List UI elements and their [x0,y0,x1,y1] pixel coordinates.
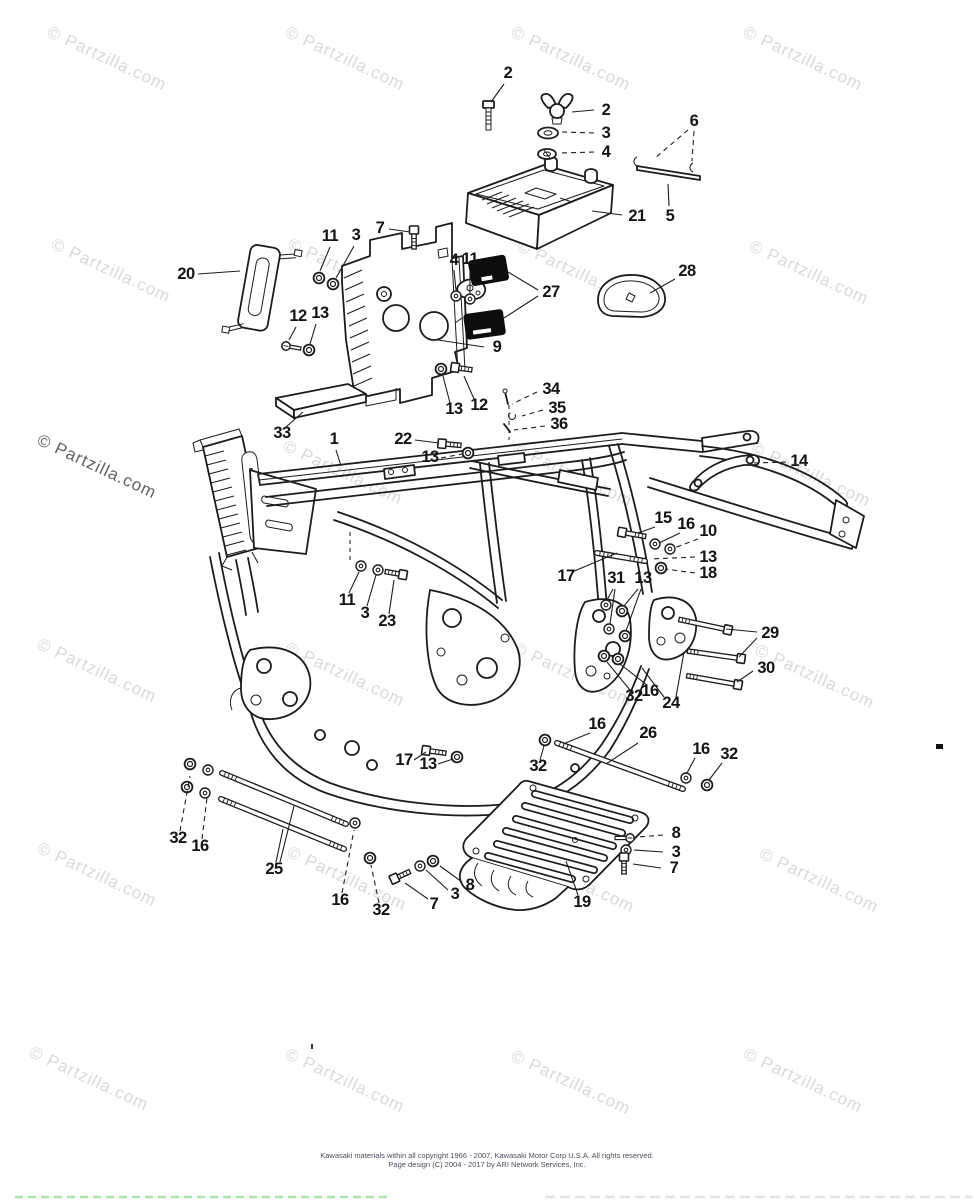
stud-fastener [221,797,344,850]
callout-13: 13 [419,755,453,773]
washer-fastener [451,291,461,301]
callout-label-3: 3 [451,885,460,903]
leader-line [349,572,359,593]
callout-label-12: 12 [289,307,307,325]
callout-label-32: 32 [169,829,187,847]
callout-15: 15 [638,509,672,533]
callout-label-4: 4 [602,143,612,161]
callout-21: 21 [592,207,646,225]
callout-label-32: 32 [372,901,390,919]
callout-label-29: 29 [761,624,779,642]
leader-line [650,557,695,559]
leader-line [276,829,283,862]
callout-19: 19 [566,861,591,911]
leader-line [650,279,675,293]
callout-label-15: 15 [654,509,672,527]
callout-label-12: 12 [470,396,488,414]
callout-label-11: 11 [462,250,479,268]
leader-line [592,211,622,215]
callout-label-14: 14 [790,452,809,470]
callout-14: 14 [754,452,809,470]
callout-label-26: 26 [639,724,657,742]
leader-line [737,671,753,682]
leader-line [415,440,439,443]
callout-28: 28 [650,262,696,293]
callout-label-11: 11 [322,227,339,245]
leader-line [289,327,296,340]
callout-4: 4 [450,251,460,290]
boltH-fastener [410,226,419,249]
callout-13: 13 [421,448,462,466]
callout-32: 32 [709,745,738,780]
callout-label-30: 30 [757,659,775,677]
nut-fastener [452,752,463,763]
callout-33: 33 [273,412,303,442]
callout-13: 13 [443,376,463,418]
callout-27: 27 [504,272,560,318]
callout-label-13: 13 [634,569,652,587]
callout-29: 29 [726,624,779,657]
leader-line [371,865,379,903]
leader-line [687,758,695,773]
callout-layer: 2234621511372041127281213913123435363312… [0,0,974,1200]
leader-line [739,638,757,657]
leader-line [508,272,538,290]
leader-line [560,152,594,153]
callout-label-27: 27 [542,283,560,301]
callout-7: 7 [405,883,439,913]
callout-4: 4 [560,143,612,161]
callout-label-16: 16 [641,682,659,700]
callout-label-3: 3 [361,604,370,622]
callout-label-25: 25 [265,860,283,878]
copyright-line-1: Kawasaki materials within all copyright … [0,1151,974,1160]
callout-label-36: 36 [550,415,568,433]
nut-fastener [540,735,551,746]
callout-label-33: 33 [273,424,291,442]
nut-fastener [304,345,315,356]
callout-23: 23 [378,580,396,630]
boltH-fastener [686,671,743,690]
nut-fastener [463,448,474,459]
callout-3: 3 [361,575,376,622]
callout-5: 5 [666,184,675,225]
callout-label-28: 28 [678,262,696,280]
boltH-fastener [389,867,412,884]
nut-fastener [185,759,196,770]
leader-line [665,569,695,573]
copyright-footer: Kawasaki materials within all copyright … [0,1151,974,1169]
leader-line [198,271,240,274]
nut-fastener [702,780,713,791]
callout-label-2: 2 [504,64,513,82]
leader-line [367,575,376,606]
callout-label-4: 4 [450,251,460,269]
callout-16: 16 [563,715,606,744]
callout-3: 3 [562,124,611,142]
callout-label-3: 3 [602,124,611,142]
nut-fastener [656,563,667,574]
stud-fastener [222,771,346,825]
washer-fastener [681,773,691,783]
callout-label-8: 8 [466,876,475,894]
callout-label-23: 23 [378,612,396,630]
callout-label-7: 7 [430,895,439,913]
callout-2: 2 [572,101,611,119]
boltH-fastener [450,362,472,374]
callout-label-19: 19 [573,893,591,911]
leader-line [512,392,537,404]
boltH-fastener [384,567,407,580]
callout-1: 1 [330,430,341,466]
leader-line [638,835,663,837]
leader-line [336,450,341,466]
callout-label-20: 20 [177,265,195,283]
leader-line [633,864,661,868]
callout-16: 16 [191,798,209,855]
leader-line [522,410,543,416]
nut-fastener [617,606,628,617]
copyright-line-2: Page design (C) 2004 - 2017 by ARI Netwo… [0,1160,974,1169]
leader-line [607,589,613,600]
leader-line [674,539,698,548]
callout-2: 2 [491,64,513,102]
callout-13: 13 [310,304,329,344]
washer-fastener [373,565,383,575]
callout-label-13: 13 [445,400,463,418]
callout-12: 12 [289,307,307,340]
nut-fastener [599,651,610,662]
nut-fastener [620,631,631,642]
callout-label-32: 32 [720,745,738,763]
leader-line [389,229,410,232]
washer-fastener [350,818,360,828]
leader-line [659,533,680,543]
boltH-fastener [620,853,629,874]
leader-line [389,580,394,614]
callout-label-6: 6 [690,112,699,130]
callout-7: 7 [376,219,410,237]
callout-label-5: 5 [666,207,675,225]
callout-36: 36 [514,415,568,433]
callout-label-10: 10 [699,522,717,540]
leader-line [336,246,354,278]
leader-line [563,733,590,744]
callout-label-13: 13 [311,304,329,322]
callout-label-24: 24 [662,694,681,712]
leader-line [438,340,484,347]
callout-11: 11 [339,572,359,609]
washer-fastener [200,788,210,798]
screwH-fastener [281,341,301,353]
nut-fastener [365,853,376,864]
leader-line [405,883,428,899]
callout-label-16: 16 [692,740,710,758]
washer-fastener [601,600,611,610]
leader-line [202,798,207,839]
leader-line [754,462,786,463]
callout-label-9: 9 [493,338,502,356]
callout-label-17: 17 [395,751,413,769]
callout-label-1: 1 [330,430,339,448]
leader-line [638,527,655,533]
callout-18: 18 [665,564,717,582]
callout-11: 11 [462,250,479,293]
washer-fastener [203,765,213,775]
leader-line [692,131,694,161]
boltH-fastener [678,615,733,635]
callout-13: 13 [624,569,652,631]
leader-line [562,132,594,133]
leader-line [454,270,456,290]
callout-32: 32 [371,865,390,919]
leader-line [572,110,594,112]
callout-label-32: 32 [529,757,547,775]
callout-label-7: 7 [670,859,679,877]
callout-label-31: 31 [607,569,625,587]
washer-fastener [604,624,614,634]
callout-label-34: 34 [542,380,561,398]
nut-fastener [314,273,325,284]
boltH-fastener [687,647,746,664]
callout-12: 12 [464,376,488,414]
boltH-fastener [438,439,462,450]
leader-line [514,426,545,430]
callout-label-2: 2 [602,101,611,119]
leader-line [676,652,684,697]
callout-6: 6 [655,112,699,161]
leader-line [606,743,638,764]
callout-label-13: 13 [419,755,437,773]
callout-label-16: 16 [331,891,349,909]
callout-label-18: 18 [699,564,717,582]
callout-label-13: 13 [421,448,439,466]
leader-line [443,376,450,403]
leader-line [440,866,462,882]
screwH-fastener [615,834,634,842]
callout-20: 20 [177,265,240,283]
nut-fastener [436,364,447,375]
callout-11: 11 [320,227,339,271]
leader-line [320,247,330,271]
leader-line [342,830,354,893]
stud-fastener [597,551,645,564]
callout-label-11: 11 [339,591,356,609]
washer-fastener [356,561,366,571]
parts-diagram-page: © Partzilla.com© Partzilla.com© Partzill… [0,0,974,1200]
callout-label-7: 7 [376,219,385,237]
stud-fastener [557,741,683,791]
callout-22: 22 [394,430,439,448]
leader-line [709,763,722,780]
leader-line [504,296,538,318]
leader-line [310,324,316,344]
callout-9: 9 [438,338,502,356]
leader-line [655,130,688,158]
callout-label-16: 16 [677,515,695,533]
nut-fastener [613,654,624,665]
leader-line [566,861,578,895]
leader-line [491,84,504,102]
callout-label-3: 3 [352,226,361,244]
callout-label-16: 16 [588,715,606,733]
callout-8: 8 [638,824,681,842]
leader-line [438,759,453,764]
callout-label-17: 17 [557,567,575,585]
callout-16: 16 [331,830,354,909]
washer-fastener [415,861,425,871]
washer-fastener [665,544,675,554]
leader-line [634,850,663,852]
nut-fastener [428,856,439,867]
leader-line [668,184,669,206]
nut-fastener [328,279,339,290]
callout-32: 32 [529,746,547,775]
boltH-fastener [617,527,646,541]
washer-fastener [650,539,660,549]
callout-26: 26 [606,724,657,764]
callout-16: 16 [687,740,710,773]
leader-line [426,870,448,890]
callout-label-16: 16 [191,837,209,855]
callout-label-22: 22 [394,430,412,448]
callout-label-8: 8 [672,824,681,842]
callout-label-21: 21 [628,207,646,225]
callout-3: 3 [336,226,361,278]
leader-line [441,454,462,458]
washer-fastener [465,294,475,304]
leader-line [607,662,630,690]
callout-7: 7 [633,859,679,877]
